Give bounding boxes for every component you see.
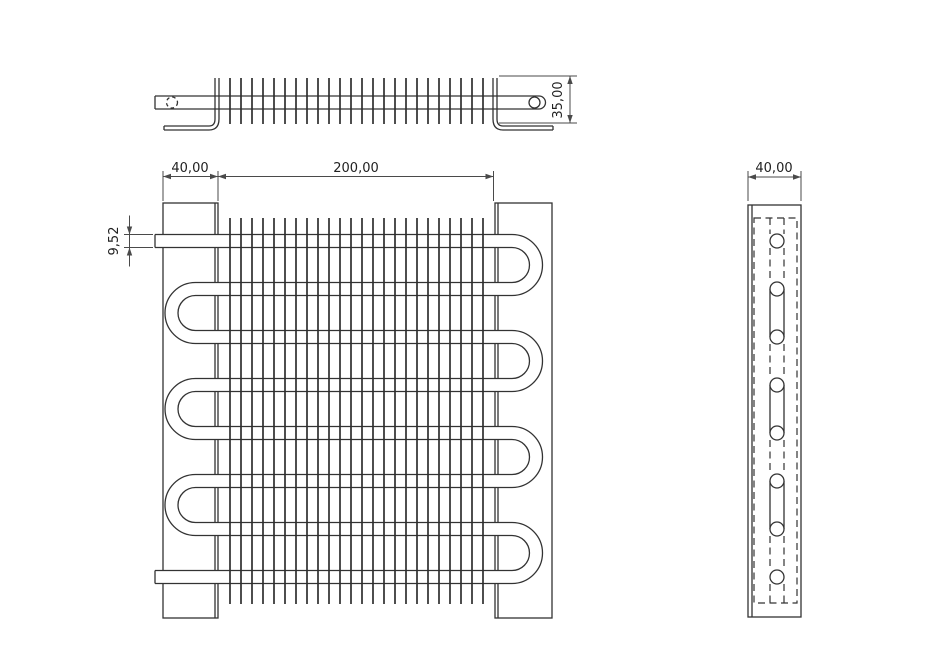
technical-drawing: 40,00 200,00 9,52 35,00 40,00 <box>0 0 940 671</box>
dim-label-front-fin-length: 200,00 <box>333 161 379 176</box>
drawing-page: 40,00 200,00 9,52 35,00 40,00 <box>0 0 940 671</box>
end-plates <box>163 203 552 618</box>
top-fin-pack <box>230 78 483 124</box>
mounting-brackets <box>164 78 553 130</box>
side-plate <box>748 205 801 617</box>
dim-label-top-fin-depth: 35,00 <box>551 81 566 118</box>
dim-label-front-tube-diameter: 9,52 <box>107 227 122 256</box>
front-view <box>124 171 552 618</box>
top-view <box>155 76 577 130</box>
front-dimensions <box>124 171 494 267</box>
serpentine-tube <box>155 235 543 584</box>
side-view <box>748 171 801 617</box>
dim-label-front-plate-width: 40,00 <box>171 161 208 176</box>
dim-label-side-plate-width: 40,00 <box>755 161 792 176</box>
tube-cross-sections <box>770 218 784 603</box>
fin-pack <box>230 218 483 604</box>
